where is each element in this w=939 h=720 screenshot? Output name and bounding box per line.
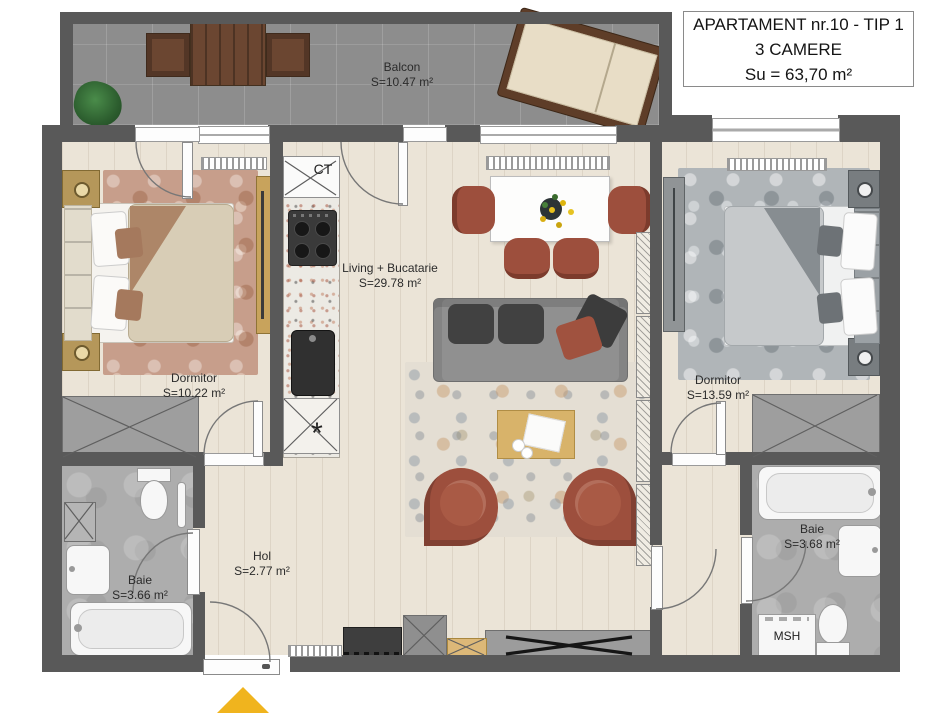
title-box: APARTAMENT nr.10 - TIP 1 3 CAMERE Su = 6… — [683, 11, 914, 87]
bed-accent-pillow — [115, 289, 144, 322]
dining-chair — [452, 186, 495, 234]
wall — [659, 115, 712, 142]
room-label-living: Living + Bucatarie S=29.78 m² — [310, 261, 470, 291]
stove-burner — [294, 243, 310, 259]
wall — [838, 115, 900, 142]
nightstand-lamp — [857, 182, 873, 198]
wall — [262, 452, 283, 466]
dining-table — [490, 176, 610, 242]
entrance-arrow-icon — [217, 687, 269, 713]
dining-chair — [504, 238, 550, 279]
sofa-cushion — [448, 304, 494, 344]
wardrobe-groove — [673, 188, 675, 321]
wall — [62, 452, 204, 466]
wall — [290, 655, 900, 672]
stove-burner — [315, 243, 331, 259]
bathtub-inner — [78, 609, 184, 649]
sofa-cushion — [498, 304, 544, 344]
boiler-label: CT — [306, 162, 340, 177]
balcony-chair — [146, 33, 190, 77]
room-area: S=10.47 m² — [322, 75, 482, 90]
room-label-bedroom-left: Dormitor S=10.22 m² — [114, 371, 274, 401]
washer-label: MSH — [759, 629, 815, 644]
room-area: S=10.22 m² — [114, 386, 274, 401]
radiator — [486, 156, 610, 170]
washing-machine: MSH — [758, 614, 816, 656]
armchair — [424, 468, 498, 546]
room-area: S=13.59 m² — [638, 388, 798, 403]
nightstand — [848, 170, 880, 208]
door-leaf — [253, 401, 263, 457]
coffee-table — [497, 410, 575, 459]
stove-burner — [315, 221, 331, 237]
room-label-bedroom-right: Dormitor S=13.59 m² — [638, 373, 798, 403]
kitchen-star: * — [305, 414, 329, 454]
room-area: S=2.77 m² — [182, 564, 342, 579]
wall — [42, 125, 62, 672]
stove-knobs — [293, 214, 331, 217]
dresser-groove — [261, 191, 264, 319]
entrance-door-leaf — [203, 659, 280, 675]
room-label-bathroom-right: Baie S=3.68 m² — [732, 522, 892, 552]
radiator — [288, 645, 342, 657]
wall — [60, 12, 672, 24]
window — [712, 118, 840, 142]
armchair-seat — [575, 480, 621, 526]
wall — [42, 655, 205, 672]
wall — [60, 12, 73, 125]
kitchen-sink — [291, 330, 335, 396]
bed-accent-pillow — [816, 225, 843, 257]
room-name: Dormitor — [638, 373, 798, 388]
room-name: Balcon — [322, 60, 482, 75]
room-label-hall: Hol S=2.77 m² — [182, 549, 342, 579]
hall-closet — [403, 615, 447, 658]
bathtub — [70, 602, 192, 656]
tub-faucet — [868, 488, 876, 496]
door-sill — [403, 127, 447, 142]
door-handle — [262, 664, 270, 669]
stove — [288, 210, 337, 266]
balcony-table — [190, 22, 266, 86]
title-line-3: Su = 63,70 m² — [684, 62, 913, 87]
toilet-tank — [816, 642, 850, 656]
title-line-1: APARTAMENT nr.10 - TIP 1 — [684, 12, 913, 37]
bathroom-cabinet — [64, 502, 96, 542]
balcony-chair — [266, 33, 310, 77]
door-leaf — [398, 142, 408, 206]
bed-pillow — [840, 212, 878, 271]
radiator — [201, 157, 267, 170]
wardrobe — [663, 177, 685, 332]
room-name: Hol — [182, 549, 342, 564]
wall — [662, 452, 672, 465]
room-area: S=3.68 m² — [732, 537, 892, 552]
room-area: S=3.66 m² — [60, 588, 220, 603]
flowers — [549, 207, 555, 213]
wall — [650, 142, 662, 545]
nightstand-lamp — [74, 182, 90, 198]
floor-plan: CT * — [0, 0, 939, 720]
dining-chair — [608, 186, 651, 234]
wall — [740, 604, 752, 655]
dining-chair — [553, 238, 599, 279]
stove-burner — [294, 221, 310, 237]
kitchen-faucet — [309, 335, 316, 342]
washer-controls — [765, 617, 809, 621]
room-label-balcony: Balcon S=10.47 m² — [322, 60, 482, 90]
wall — [193, 466, 205, 528]
room-name: Dormitor — [114, 371, 274, 386]
toilet — [140, 480, 168, 520]
door-sill — [135, 127, 200, 142]
bed-headboard — [64, 205, 92, 341]
window — [480, 126, 617, 144]
towel-rail — [177, 482, 186, 528]
bedroom-right-closet — [752, 394, 880, 460]
coffee-table-dish — [521, 447, 533, 459]
toilet — [818, 604, 848, 644]
nightstand-lamp — [74, 345, 90, 361]
wall — [724, 452, 880, 465]
nightstand-lamp — [857, 350, 873, 366]
title-line-2: 3 CAMERE — [684, 37, 913, 62]
armchair — [563, 468, 637, 546]
bathtub-inner — [766, 473, 874, 513]
bathtub — [758, 466, 882, 520]
wall — [659, 12, 672, 125]
room-area: S=29.78 m² — [310, 276, 470, 291]
armchair-seat — [440, 480, 486, 526]
bed-pillow — [840, 277, 878, 336]
room-name: Baie — [732, 522, 892, 537]
entry-cabinet — [343, 627, 402, 658]
door-leaf — [651, 546, 663, 610]
bed-accent-pillow — [816, 292, 843, 324]
wall — [880, 142, 900, 672]
wall — [268, 125, 403, 142]
bedroom-left-closet — [62, 396, 199, 460]
wall — [650, 607, 662, 655]
wall — [615, 125, 660, 142]
tv-stand — [485, 630, 652, 658]
basin-faucet — [69, 566, 75, 572]
room-name: Living + Bucatarie — [310, 261, 470, 276]
tub-faucet — [74, 624, 82, 632]
door-leaf — [182, 142, 193, 199]
wall — [445, 125, 480, 142]
radiator — [727, 158, 827, 171]
wall — [270, 142, 283, 466]
nightstand — [62, 170, 100, 208]
door-leaf — [716, 401, 726, 455]
bed-accent-pillow — [115, 227, 144, 260]
window — [198, 126, 270, 144]
bed-duvet-fold — [764, 208, 820, 296]
